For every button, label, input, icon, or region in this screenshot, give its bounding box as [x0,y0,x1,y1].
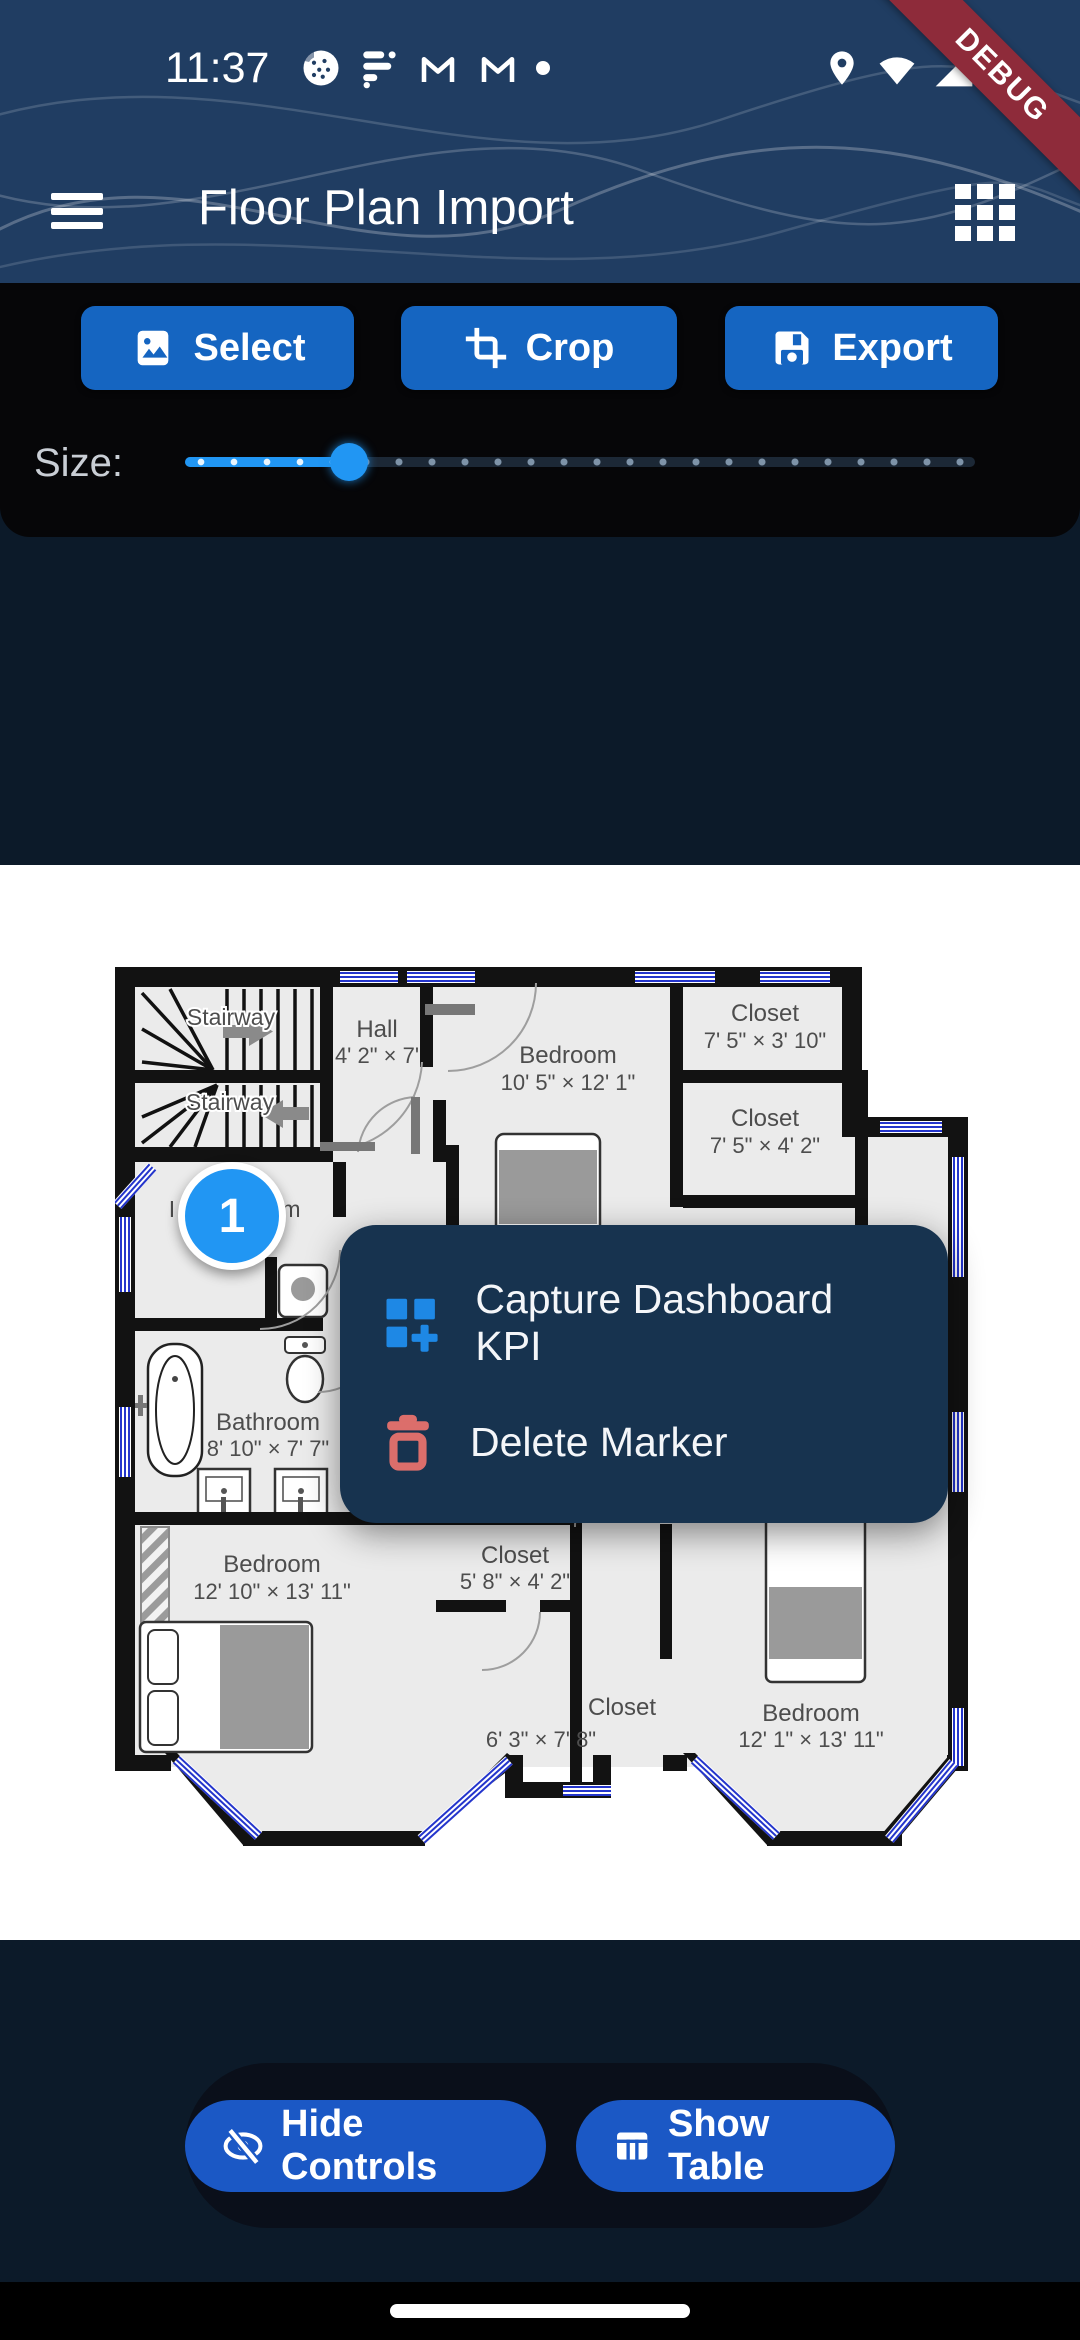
room-dims-bedroom-top: 10' 5" × 12' 1" [501,1070,636,1095]
room-label-fragment: I [169,1196,175,1222]
capture-dashboard-kpi-item[interactable]: Capture Dashboard KPI [340,1276,948,1370]
room-dims-hall: 4' 2" × 7' [335,1043,419,1068]
room-label-stairway-1: Stairway [187,1004,276,1030]
room-label-bathroom: Bathroom [216,1409,320,1436]
gmail-notification-icon [476,47,520,89]
status-time: 11:37 [165,44,269,93]
phone-screen: 11:37 [0,0,1080,2340]
floorplan-canvas[interactable]: Stairway Stairway Hall 4' 2" × 7' Bedroo… [0,865,1080,1940]
export-button-label: Export [832,327,952,370]
select-button-label: Select [194,327,306,370]
floorplan-image: Stairway Stairway Hall 4' 2" × 7' Bedroo… [115,967,975,1857]
room-dims-closet-2: 7' 5" × 4' 2" [710,1133,820,1158]
notification-icons [300,46,550,90]
dashboard-customize-icon [382,1294,439,1352]
location-icon [822,46,862,90]
trash-icon [382,1414,434,1472]
room-dims-closet-mid: 5' 8" × 4' 2" [460,1569,570,1594]
delete-marker-item[interactable]: Delete Marker [340,1414,948,1472]
room-label-hall: Hall [356,1016,397,1043]
apps-grid-button[interactable] [955,184,1017,244]
cookie-notification-icon [300,47,342,89]
map-marker-1[interactable]: 1 [178,1162,286,1270]
room-dims-bedroom-bl: 12' 10" × 13' 11" [193,1579,351,1604]
table-icon [612,2124,652,2168]
sink [198,1469,250,1517]
crop-icon [464,326,508,370]
crop-button-label: Crop [526,327,615,370]
room-label-closet-2: Closet [731,1105,799,1132]
menu-button[interactable] [51,193,103,229]
gmail-notification-icon [416,47,460,89]
room-label-bedroom-br: Bedroom [762,1700,859,1727]
room-label-closet-mid: Closet [481,1542,549,1569]
size-slider[interactable] [185,457,975,467]
system-nav-bar [0,2282,1080,2340]
crop-button[interactable]: Crop [401,306,677,390]
hide-controls-label: Hide Controls [281,2103,510,2189]
bed-bottom-left-bedroom [140,1622,312,1752]
capture-dashboard-kpi-label: Capture Dashboard KPI [475,1276,906,1370]
sink [275,1469,327,1517]
controls-panel: Select Crop Export Size: [0,283,1080,537]
eye-off-icon [221,2124,265,2168]
more-notifications-dot-icon [536,47,550,89]
room-label-bedroom-top: Bedroom [519,1042,616,1069]
wifi-icon [874,46,920,90]
room-label-stairway-2: Stairway [186,1089,275,1115]
app-header: 11:37 [0,0,1080,283]
room-label-closet-corridor: Closet [588,1694,656,1721]
page-title: Floor Plan Import [198,180,574,236]
room-dims-closet-1: 7' 5" × 3' 10" [704,1028,827,1053]
bottom-controls-bar: Hide Controls Show Table [185,2063,895,2228]
room-dims-mid-room: 6' 3" × 7' 8" [486,1727,596,1752]
show-table-label: Show Table [668,2103,859,2189]
show-table-button[interactable]: Show Table [576,2100,895,2192]
image-icon [130,325,176,371]
decorative-waves [0,0,1080,283]
size-slider-label: Size: [34,441,123,486]
save-icon [770,326,814,370]
room-dims-bathroom: 8' 10" × 7' 7" [207,1436,330,1461]
select-button[interactable]: Select [81,306,354,390]
room-label-bedroom-bl: Bedroom [223,1551,320,1578]
size-slider-thumb[interactable] [330,443,368,481]
delete-marker-label: Delete Marker [470,1419,727,1466]
room-dims-bedroom-br: 12' 1" × 13' 11" [738,1727,883,1752]
gesture-handle[interactable] [390,2304,690,2318]
room-label-closet-1: Closet [731,1000,799,1027]
export-button[interactable]: Export [725,306,998,390]
size-slider-fill [185,457,348,467]
shower-basin [279,1265,327,1317]
hide-controls-button[interactable]: Hide Controls [185,2100,546,2192]
fitness-notification-icon [358,47,400,89]
marker-context-menu: Capture Dashboard KPI Delete Marker [340,1225,948,1523]
